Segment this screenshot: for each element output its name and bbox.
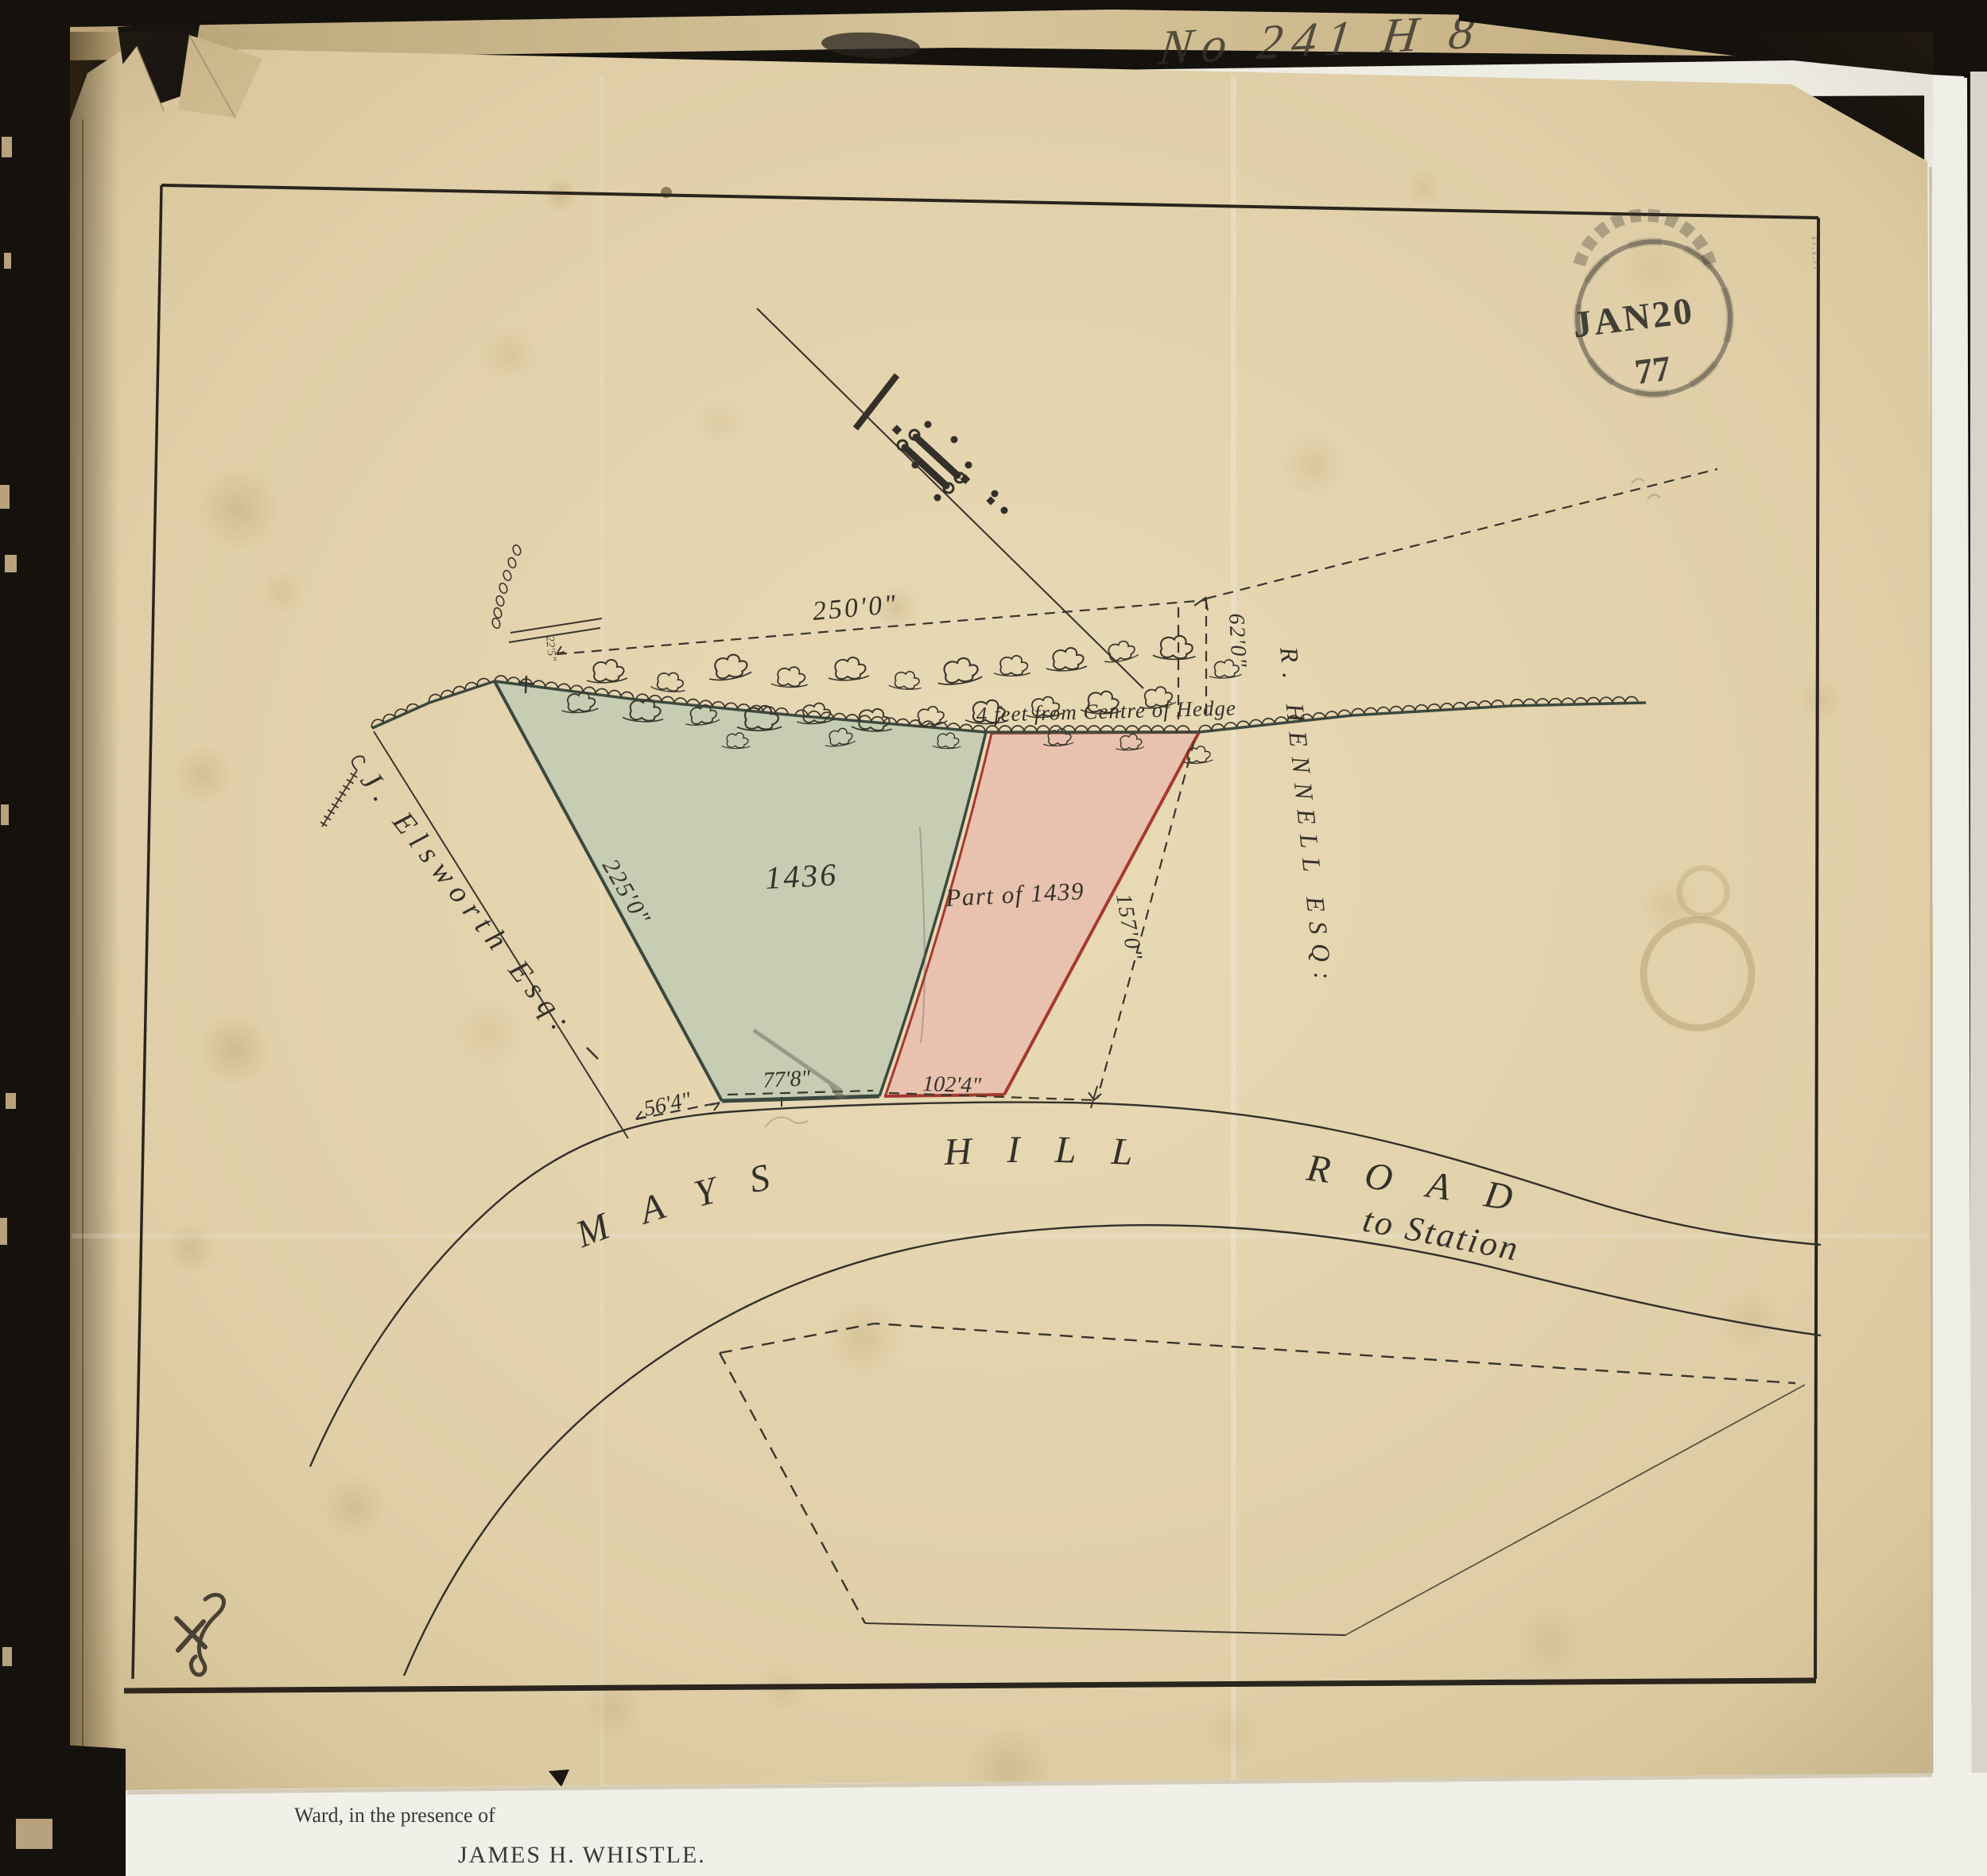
far-right-sliver — [1970, 72, 1987, 1876]
caption-line1: Ward, in the presence of — [294, 1804, 495, 1827]
bottom-left-cover — [0, 1741, 126, 1876]
scanned-map-page: No 241 H 8 JAN20 77 17.1.77 — [0, 0, 1987, 1876]
caption-line2: JAMES H. WHISTLE. — [458, 1842, 706, 1868]
sheet-vignette — [70, 32, 1933, 1793]
